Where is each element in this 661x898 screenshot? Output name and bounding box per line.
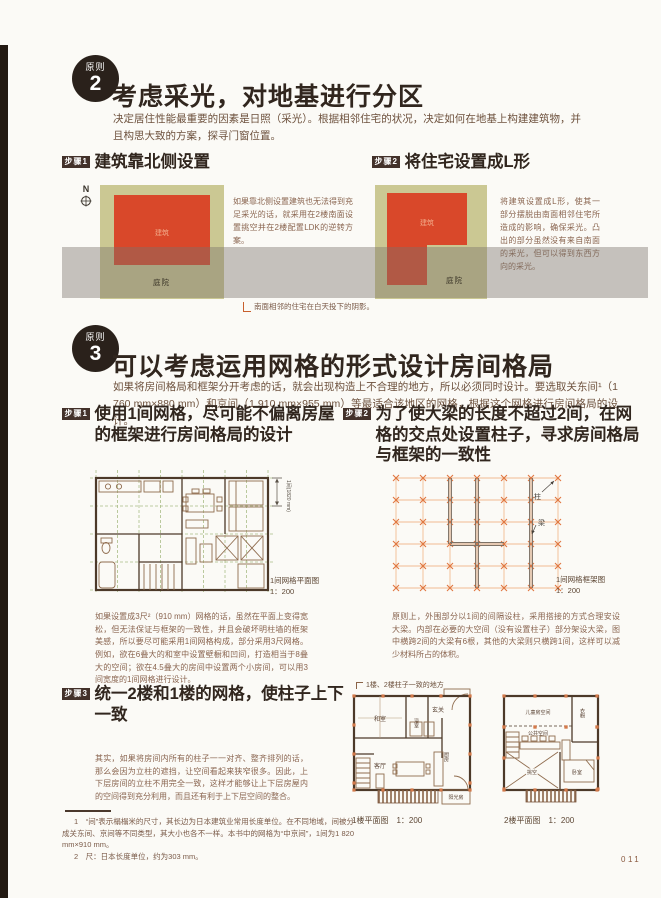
plan1-caption: 1间网格平面图 1：200 [270, 575, 319, 598]
furniture [356, 722, 468, 790]
deck [378, 790, 438, 803]
room-void: 挑空 [527, 769, 537, 776]
furniture [506, 732, 594, 788]
compass-circle-icon [80, 195, 92, 207]
yard-label: 庭院 [153, 277, 170, 288]
dimension-label: 1间(1820 mm) [285, 480, 292, 512]
footnote-rule [65, 810, 111, 812]
p3-step3-title: 统一2楼和1楼的网格，使柱子上下一致 [94, 684, 354, 725]
p3-step2-title: 为了使大梁的长度不超过2间，在网格的交点处设置柱子，寻求房间格局与框架的一致性 [375, 404, 643, 466]
step2-badge: 步骤2 [372, 156, 400, 168]
interior-walls [354, 696, 442, 758]
beams [449, 478, 533, 588]
plan1-scale: 1：200 [270, 586, 319, 597]
footnote-1: 1 “间”表示榻榻米的尺寸，其长边为日本建筑业常用长度单位。在不同地域，间被分成… [62, 816, 354, 851]
north-compass-icon: N [78, 185, 94, 210]
p3-step2-body: 原则上，外围部分以1间的间隔设柱，采用搭接的方式合理安设大梁。内部在必要的大空间… [392, 611, 620, 662]
dim-arrow-up [275, 479, 279, 483]
shadow-caption: 南面相邻的住宅在白天投下的阴影。 [243, 301, 374, 312]
footnotes: 1 “间”表示榻榻米的尺寸，其长边为日本建筑业常用长度单位。在不同地域，间被分成… [62, 816, 354, 863]
shadow-caption-text: 南面相邻的住宅在白天投下的阴影。 [254, 301, 374, 312]
room-sunroom: 阳光房 [448, 794, 463, 801]
room-bedroom: 卧室 [572, 769, 582, 776]
principle-number: 2 [90, 73, 102, 94]
p3-step1-title: 使用1间网格，尽可能不偏离房屋的框架进行房间格局的设计 [94, 404, 350, 445]
step2-badge: 步骤2 [343, 408, 371, 420]
grid-caption: 1间网格框架图 1：200 [556, 574, 605, 597]
footnote-2: 2 尺：日本长度单位，约为303 mm。 [62, 851, 354, 863]
leader-line-icon [243, 302, 251, 312]
page-number: 011 [621, 855, 641, 864]
deck [526, 790, 576, 802]
first-floor-plan: 和室 玄关 浴室 客厅 厨房 阳光房 [350, 688, 478, 810]
p3-step3-body: 其实，如果将房间内所有的柱子一一对齐、整齐排列的话，那么会因为立柱的遮挡，让空间… [95, 753, 308, 804]
principle-label: 原则 [85, 63, 105, 72]
grid-and-column-marks [393, 475, 561, 591]
building-label: 建筑 [420, 218, 434, 227]
room-public: 公共空间 [528, 730, 548, 737]
p2-step2-header: 步骤2 将住宅设置成L形 [372, 152, 652, 173]
p3-step3-header: 步骤3 统一2楼和1楼的网格，使柱子上下一致 [62, 684, 354, 725]
room-bath: 浴室 [413, 717, 419, 728]
floor2-caption: 2楼平面图 1：200 [504, 815, 574, 826]
principle-2-title: 考虑采光，对地基进行分区 [112, 77, 424, 113]
column-label: 柱 [534, 492, 541, 501]
p2-step1-header: 步骤1 建筑靠北侧设置 [62, 152, 352, 173]
grid-scale: 1：200 [556, 585, 605, 596]
plan1-caption-text: 1间网格平面图 [270, 575, 319, 586]
room-kitchen: 厨房 [443, 752, 449, 763]
shadow-band-overlay [62, 247, 648, 298]
column-leader-arrow [551, 481, 555, 485]
room-kids: 儿童房空间 [525, 709, 550, 716]
book-page: 原则 2 考虑采光，对地基进行分区 决定居住性能最重要的因素是日照（采光）。根据… [0, 0, 661, 898]
room-washitsu: 和室 [374, 715, 386, 723]
p2-step1-title: 建筑靠北侧设置 [94, 152, 210, 173]
p3-step2-header: 步骤2 为了使大梁的长度不超过2间，在网格的交点处设置柱子，寻求房间格局与框架的… [343, 404, 643, 466]
grid-caption-text: 1间网格框架图 [556, 574, 605, 585]
beam-leader-arrow [531, 530, 534, 534]
beam-label: 梁 [538, 518, 545, 527]
room-closet: 衣橱 [579, 707, 585, 719]
step1-badge: 步骤1 [62, 156, 90, 168]
room-entrance: 玄关 [432, 706, 444, 714]
principle-number: 3 [90, 343, 102, 364]
second-floor-plan: 儿童房空间 衣橱 公共空间 卧室 挑空 [502, 690, 600, 808]
p3-step1-header: 步骤1 使用1间网格，尽可能不偏离房屋的框架进行房间格局的设计 [62, 404, 350, 445]
step3-badge: 步骤3 [62, 688, 90, 700]
room-living: 客厅 [374, 762, 386, 770]
dim-arrow-down [275, 502, 279, 506]
building-label: 建筑 [155, 228, 169, 237]
principle-3-title: 可以考虑运用网格的形式设计房间格局 [112, 347, 554, 383]
compass-n-label: N [78, 185, 94, 195]
floor1-caption: 1楼平面图 1：200 [352, 815, 422, 826]
p2-step2-title: 将住宅设置成L形 [404, 152, 530, 173]
step1-badge: 步骤1 [62, 408, 90, 420]
principle-label: 原则 [85, 333, 105, 342]
yard-label: 庭院 [446, 275, 463, 286]
page-edge-strip [0, 45, 8, 898]
ken-grid-floor-plan: 1间(1820 mm) [86, 468, 301, 594]
p3-step1-body: 如果设置成3尺²（910 mm）网格的话，虽然在平面上变得宽松，但无法保证与框架… [95, 611, 308, 687]
principle-2-body: 决定居住性能最重要的因素是日照（采光）。根据相邻住宅的状况，决定如何在地基上构建… [113, 111, 581, 146]
p2-step1-note: 如果靠北侧设置建筑也无法得到充足采光的话，就采用在2楼南面设置挑空并在2楼配置L… [233, 196, 353, 248]
